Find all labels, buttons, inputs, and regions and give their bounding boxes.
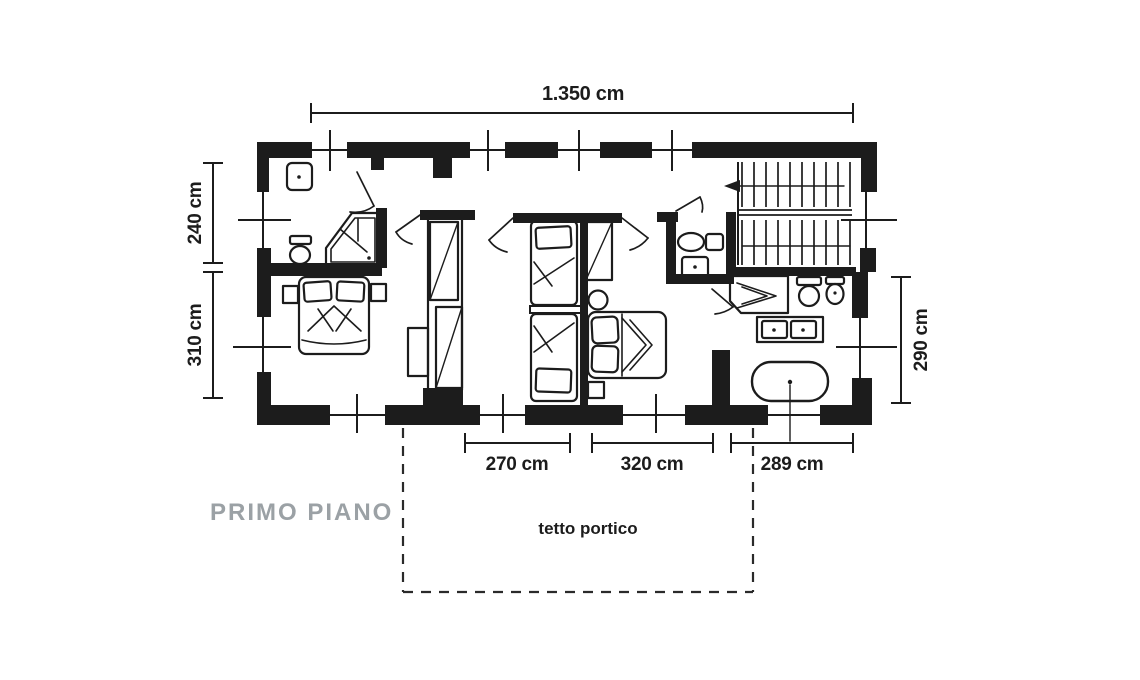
bathtub-icon	[752, 362, 828, 441]
portico-label: tetto portico	[538, 519, 637, 538]
dimension-top-label: 1.350 cm	[542, 83, 624, 105]
portico-roof-outline: tetto portico	[403, 428, 753, 592]
bedroom2	[586, 222, 666, 398]
bathroom-toilet-icon	[797, 277, 821, 306]
small-wc	[678, 233, 723, 278]
wc-toilet-icon	[678, 233, 723, 251]
dimension-right: 290 cm	[891, 277, 932, 403]
bidet-icon	[826, 277, 844, 304]
shower-icon	[730, 276, 788, 313]
bedroom2-double-bed	[588, 312, 666, 378]
bedside-table	[588, 382, 604, 398]
dimension-left-lower: 310 cm	[185, 272, 223, 398]
stool-icon	[589, 291, 608, 310]
interior-walls	[263, 208, 856, 407]
dimension-left-lower-label: 310 cm	[185, 304, 206, 367]
dimension-top: 1.350 cm	[311, 83, 853, 123]
twin-bedroom-beds	[530, 221, 581, 401]
dimension-left-upper: 240 cm	[185, 163, 223, 263]
bedroom1-desk	[408, 328, 428, 376]
plan-title: PRIMO PIANO	[210, 499, 393, 526]
dimension-bottom-left: 270 cm	[465, 433, 570, 475]
nightstand-right	[371, 284, 386, 301]
floor-plan-page: 1.350 cm 240 cm 310 cm 290 cm 270 cm 320…	[0, 0, 1140, 680]
dimension-bottom-center: 320 cm	[592, 433, 713, 475]
washbasin-icon	[287, 163, 312, 190]
single-bed-bottom	[531, 314, 577, 401]
dimension-bottom-center-label: 320 cm	[621, 454, 684, 475]
double-vanity-icon	[757, 317, 823, 342]
floor-plan-drawing: 1.350 cm 240 cm 310 cm 290 cm 270 cm 320…	[0, 0, 1140, 680]
exterior-walls	[257, 142, 877, 425]
bedroom1-double-bed	[283, 277, 386, 354]
corner-shower-icon	[326, 213, 380, 267]
staircase	[724, 162, 852, 265]
toilet-icon	[290, 236, 311, 264]
dimension-bottom-right-label: 289 cm	[761, 454, 824, 475]
dimension-bottom-right: 289 cm	[731, 433, 853, 475]
wardrobe-column	[428, 220, 462, 390]
dimension-left-upper-label: 240 cm	[185, 182, 206, 245]
bedroom1-ensuite	[287, 163, 380, 267]
nightstand-left	[283, 286, 298, 303]
bedroom2-wardrobe	[586, 222, 612, 280]
dimension-bottom-left-label: 270 cm	[486, 454, 549, 475]
dimension-right-label: 290 cm	[911, 309, 932, 372]
single-bed-top	[531, 221, 577, 305]
